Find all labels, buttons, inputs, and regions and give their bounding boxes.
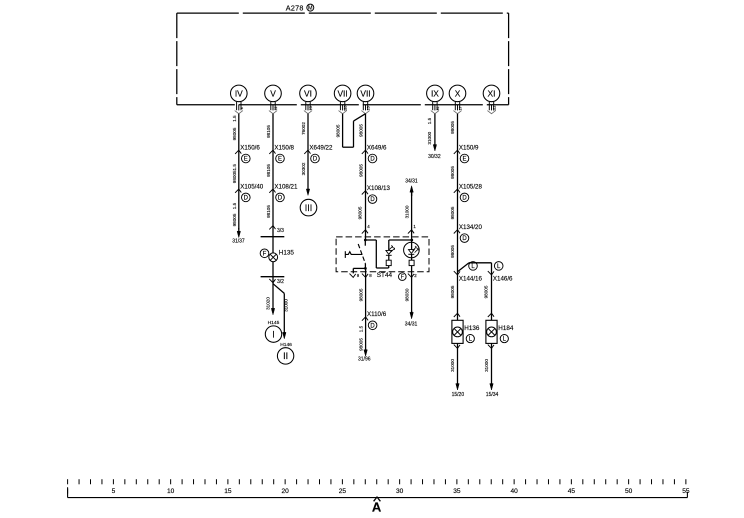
svg-text:IX: IX [431, 88, 439, 98]
svg-text:E: E [462, 157, 466, 163]
svg-text:15: 15 [367, 106, 371, 110]
svg-text:1.5: 1.5 [232, 202, 237, 209]
svg-text:3/2: 3/2 [277, 279, 284, 285]
svg-text:55: 55 [682, 488, 690, 495]
svg-text:31000: 31000 [404, 205, 409, 218]
svg-text:X105/28: X105/28 [459, 183, 483, 190]
svg-text:40: 40 [510, 488, 518, 495]
svg-text:98005: 98005 [232, 213, 237, 226]
svg-text:25: 25 [339, 488, 347, 495]
svg-text:1.5: 1.5 [427, 117, 432, 124]
svg-text:98005: 98005 [450, 206, 455, 219]
svg-text:15: 15 [309, 106, 313, 110]
svg-text:1.5: 1.5 [359, 325, 364, 332]
svg-text:15/34: 15/34 [486, 392, 499, 398]
svg-text:A: A [372, 500, 382, 515]
svg-text:E: E [278, 157, 282, 163]
svg-text:98005: 98005 [232, 127, 237, 140]
svg-text:E: E [244, 157, 248, 163]
svg-text:98005: 98005 [450, 166, 455, 179]
svg-text:98005: 98005 [358, 124, 363, 137]
svg-text:X150/6: X150/6 [240, 144, 260, 151]
svg-text:98030: 98030 [404, 288, 409, 301]
svg-text:III: III [305, 203, 313, 213]
svg-text:34/31: 34/31 [405, 321, 418, 327]
svg-text:D: D [370, 323, 375, 329]
svg-text:15: 15 [224, 488, 232, 495]
svg-text:98005: 98005 [359, 338, 364, 351]
svg-text:98005: 98005 [450, 245, 455, 258]
svg-text:II: II [283, 351, 288, 361]
svg-text:31/96: 31/96 [358, 356, 371, 362]
svg-text:X134/20: X134/20 [459, 224, 483, 231]
svg-text:111: 111 [493, 106, 497, 111]
svg-text:D: D [462, 236, 467, 242]
svg-text:X108/21: X108/21 [274, 183, 298, 190]
svg-text:3/3: 3/3 [277, 228, 284, 234]
svg-text:X146/6: X146/6 [493, 275, 513, 282]
svg-text:H184: H184 [498, 325, 514, 332]
svg-text:98105: 98105 [266, 164, 271, 177]
svg-text:VII: VII [360, 88, 370, 98]
svg-text:F: F [263, 251, 267, 257]
svg-text:I: I [272, 329, 275, 339]
svg-text:31000: 31000 [427, 131, 432, 144]
svg-text:D: D [244, 196, 249, 202]
svg-text:ST44: ST44 [377, 272, 393, 279]
svg-text:31000: 31000 [283, 299, 288, 312]
svg-text:98005: 98005 [358, 164, 363, 177]
svg-text:5: 5 [112, 488, 116, 495]
svg-text:17: 17 [459, 106, 463, 110]
svg-text:110: 110 [344, 105, 348, 111]
svg-text:1.5: 1.5 [232, 164, 237, 171]
svg-text:10: 10 [167, 488, 175, 495]
svg-text:31020: 31020 [266, 297, 271, 310]
svg-text:81: 81 [436, 106, 440, 110]
svg-text:34/31: 34/31 [405, 179, 418, 185]
svg-text:D: D [278, 196, 283, 202]
svg-text:XI: XI [488, 88, 496, 98]
svg-text:98105: 98105 [266, 125, 271, 138]
svg-text:H135: H135 [279, 250, 295, 257]
svg-text:VII: VII [337, 88, 347, 98]
svg-text:X: X [455, 88, 461, 98]
svg-text:D: D [370, 157, 375, 163]
svg-text:98005: 98005 [450, 121, 455, 134]
svg-text:H145: H145 [268, 320, 280, 326]
svg-text:X649/6: X649/6 [367, 144, 387, 151]
svg-text:30/32: 30/32 [428, 154, 441, 160]
svg-text:11: 11 [274, 106, 278, 110]
svg-text:50: 50 [625, 488, 633, 495]
svg-text:98005: 98005 [336, 124, 341, 137]
svg-text:D: D [462, 196, 467, 202]
svg-text:98005: 98005 [359, 288, 364, 301]
svg-text:F: F [401, 275, 404, 281]
svg-text:76002: 76002 [301, 122, 306, 135]
svg-text:98005: 98005 [450, 285, 455, 298]
svg-text:15/20: 15/20 [452, 392, 465, 398]
svg-text:98005: 98005 [483, 285, 488, 298]
svg-text:X105/40: X105/40 [240, 183, 264, 190]
svg-text:45: 45 [568, 488, 576, 495]
svg-text:H136: H136 [464, 325, 480, 332]
svg-text:X110/6: X110/6 [367, 311, 387, 318]
svg-text:D: D [313, 157, 318, 163]
svg-text:31000: 31000 [450, 359, 455, 372]
svg-text:IV: IV [235, 88, 243, 98]
svg-text:X150/9: X150/9 [459, 144, 479, 151]
svg-text:31/37: 31/37 [232, 238, 245, 244]
svg-text:V: V [270, 88, 276, 98]
svg-text:98005: 98005 [232, 170, 237, 183]
svg-text:8: 8 [240, 107, 244, 109]
svg-text:X649/22: X649/22 [309, 144, 333, 151]
svg-text:30: 30 [396, 488, 404, 495]
svg-text:X108/13: X108/13 [367, 185, 391, 192]
svg-text:VI: VI [304, 88, 312, 98]
svg-text:35: 35 [453, 488, 461, 495]
svg-text:1.5: 1.5 [232, 115, 237, 122]
svg-text:A278: A278 [286, 3, 304, 12]
svg-text:H146: H146 [280, 342, 292, 348]
svg-text:X150/8: X150/8 [274, 144, 294, 151]
svg-text:D: D [370, 197, 375, 203]
svg-text:M: M [308, 6, 313, 12]
svg-text:X144/16: X144/16 [459, 275, 483, 282]
svg-text:98105: 98105 [266, 205, 271, 218]
svg-text:31000: 31000 [484, 359, 489, 372]
svg-text:98005: 98005 [357, 206, 362, 219]
svg-text:30302: 30302 [301, 162, 306, 175]
svg-text:20: 20 [281, 488, 289, 495]
